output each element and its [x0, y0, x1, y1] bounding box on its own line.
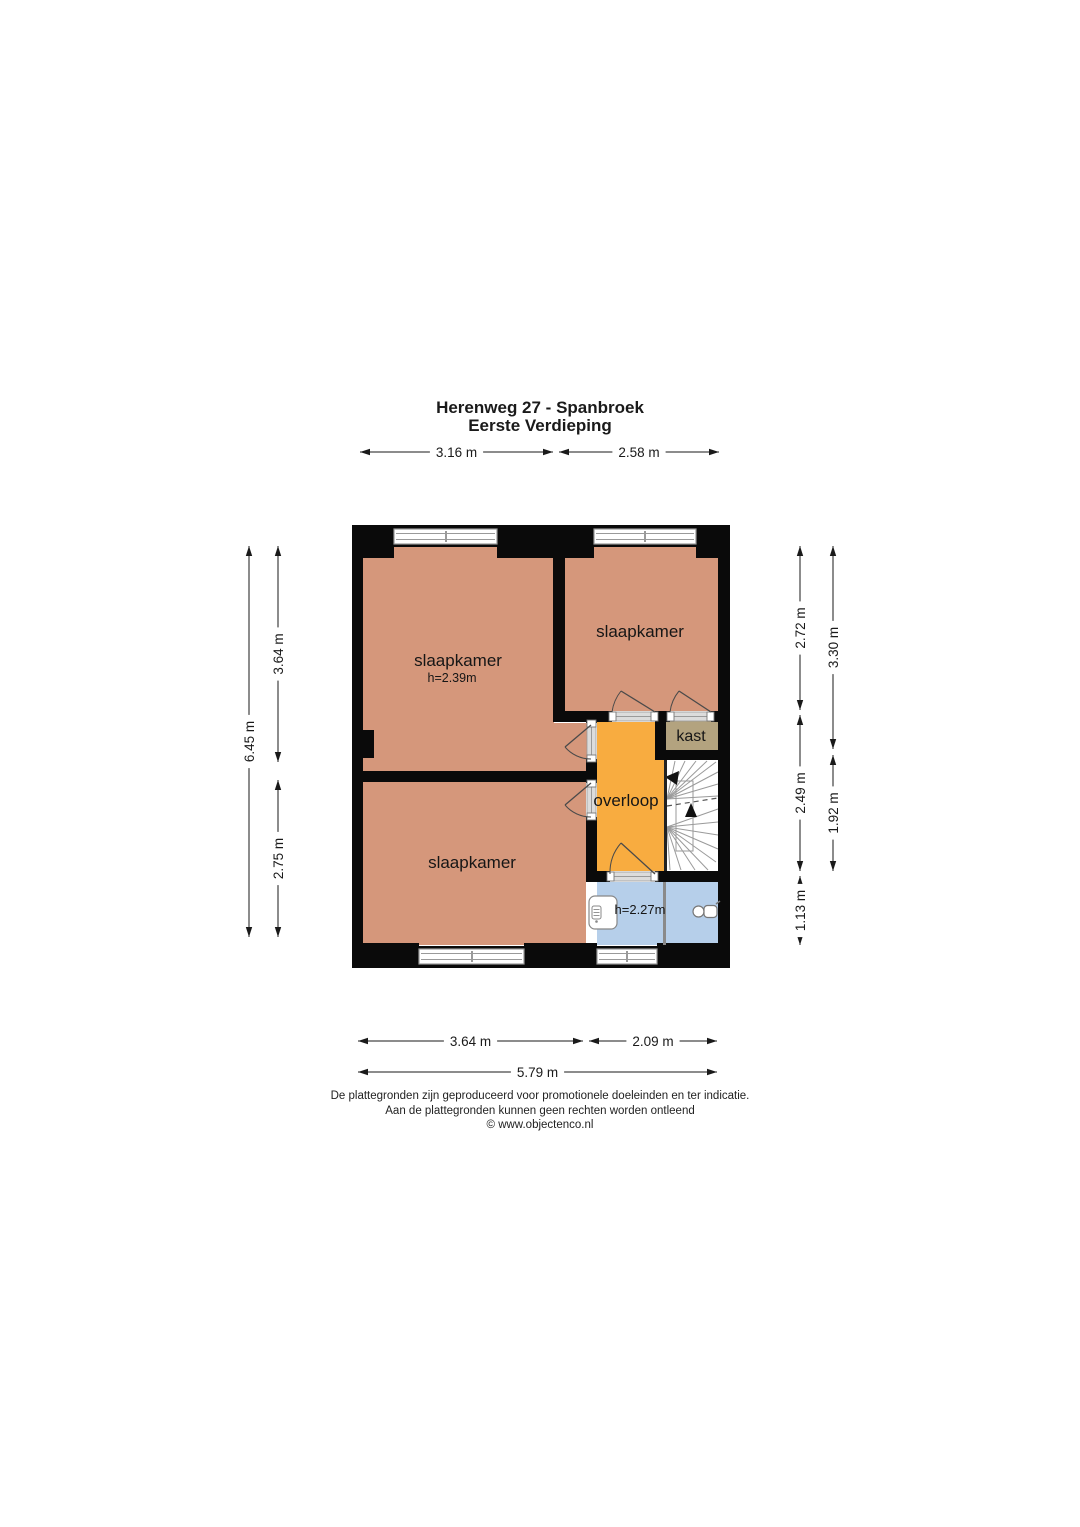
label-bedroom-bottom: slaapkamer — [428, 853, 516, 872]
dimension-arrow — [275, 752, 281, 762]
wall — [352, 771, 590, 782]
footer-copyright: © www.objectenco.nl — [0, 1118, 1080, 1133]
dimension-arrow — [707, 1069, 717, 1075]
dimension-vertical: 1.13 m — [792, 876, 809, 945]
dimension-horizontal: 3.64 m — [358, 1033, 583, 1050]
dimension-vertical: 6.45 m — [241, 546, 258, 937]
dimension-label: 3.30 m — [826, 627, 841, 668]
dimension-vertical: 3.30 m — [825, 546, 842, 749]
dimension-arrow — [358, 1069, 368, 1075]
dimension-arrow — [360, 449, 370, 455]
dimension-label: 2.49 m — [793, 772, 808, 813]
dimension-arrow — [358, 1038, 368, 1044]
dimension-arrow — [797, 700, 803, 710]
shower-drain — [595, 920, 598, 923]
dimension-arrow — [709, 449, 719, 455]
label-bathroom-height: h=2.27m — [615, 902, 666, 917]
dimension-arrow — [830, 546, 836, 556]
room-fill — [554, 723, 587, 773]
dimension-label: 3.64 m — [450, 1034, 491, 1049]
window-icon — [419, 949, 524, 964]
dimension-label: 1.92 m — [826, 792, 841, 833]
wall — [524, 943, 597, 968]
footer-line-2: Aan de plattegronden kunnen geen rechten… — [0, 1104, 1080, 1119]
dimension-vertical: 2.72 m — [792, 546, 809, 710]
dimension-vertical: 2.75 m — [270, 780, 287, 937]
dimension-label: 3.64 m — [271, 633, 286, 674]
dimension-arrow — [830, 739, 836, 749]
window-icon — [594, 529, 696, 544]
door-threshold — [607, 872, 658, 881]
wall — [352, 525, 394, 558]
window-icon — [597, 949, 657, 964]
dimension-label: 2.58 m — [618, 445, 659, 460]
wall — [655, 871, 718, 882]
door-threshold — [667, 712, 714, 721]
dimension-arrow — [797, 546, 803, 556]
dimension-label: 2.72 m — [793, 607, 808, 648]
wall — [553, 547, 565, 722]
footer-line-1: De plattegronden zijn geproduceerd voor … — [0, 1089, 1080, 1104]
door-jamb — [707, 712, 714, 721]
dimension-arrow — [275, 780, 281, 790]
wall — [553, 711, 612, 722]
dimension-label: 6.45 m — [242, 721, 257, 762]
toilet-bowl — [693, 906, 704, 917]
wall — [657, 943, 730, 968]
door-jamb — [607, 872, 614, 881]
dimension-arrow — [830, 861, 836, 871]
label-bedroom-top-left: slaapkamer — [414, 651, 502, 670]
stairs-icon — [664, 760, 718, 871]
shower-icon — [589, 896, 617, 929]
label-bedroom-top-right: slaapkamer — [596, 622, 684, 641]
dimension-label: 3.16 m — [436, 445, 477, 460]
door-threshold — [587, 720, 596, 762]
dimension-label: 1.13 m — [793, 890, 808, 931]
stairs-divider — [664, 760, 667, 871]
dimension-arrow — [573, 1038, 583, 1044]
dimension-arrow — [589, 1038, 599, 1044]
wall — [352, 730, 374, 758]
floor-plan: slaapkamerh=2.39mslaapkamerkastoverloops… — [0, 0, 1080, 1527]
page: { "title": { "line1": "Herenweg 27 - Spa… — [0, 0, 1080, 1527]
dimension-arrow — [707, 1038, 717, 1044]
dimension-label: 5.79 m — [517, 1065, 558, 1080]
dimension-arrow — [246, 546, 252, 556]
wall — [497, 525, 594, 558]
wall — [352, 943, 419, 968]
label-overloop: overloop — [593, 791, 658, 810]
dimension-arrow — [797, 861, 803, 871]
wall — [586, 817, 597, 874]
dimension-arrow — [275, 546, 281, 556]
door-threshold — [609, 712, 658, 721]
door-jamb — [587, 720, 596, 727]
dimension-vertical: 2.49 m — [792, 715, 809, 871]
dimension-arrow — [559, 449, 569, 455]
label-kast: kast — [676, 728, 706, 745]
door-jamb — [609, 712, 616, 721]
dimension-horizontal: 3.16 m — [360, 444, 553, 461]
dimension-arrow — [830, 755, 836, 765]
wall — [696, 525, 730, 558]
label-bedroom-top-left-height: h=2.39m — [428, 671, 477, 685]
dimension-vertical: 3.64 m — [270, 546, 287, 762]
dimension-arrow — [543, 449, 553, 455]
dimension-horizontal: 5.79 m — [358, 1064, 717, 1081]
footer-block: De plattegronden zijn geproduceerd voor … — [0, 1089, 1080, 1133]
dimension-label: 2.09 m — [632, 1034, 673, 1049]
window-icon — [394, 529, 497, 544]
dimension-arrow — [246, 927, 252, 937]
dimension-label: 2.75 m — [271, 838, 286, 879]
wall — [655, 750, 718, 760]
door-jamb — [667, 712, 674, 721]
dimension-horizontal: 2.58 m — [559, 444, 719, 461]
dimension-vertical: 1.92 m — [825, 755, 842, 871]
wall — [586, 871, 610, 882]
dimension-horizontal: 2.09 m — [589, 1033, 717, 1050]
toilet-tank — [704, 906, 717, 918]
door-jamb — [651, 712, 658, 721]
dimension-arrow — [797, 715, 803, 725]
dimension-arrow — [275, 927, 281, 937]
